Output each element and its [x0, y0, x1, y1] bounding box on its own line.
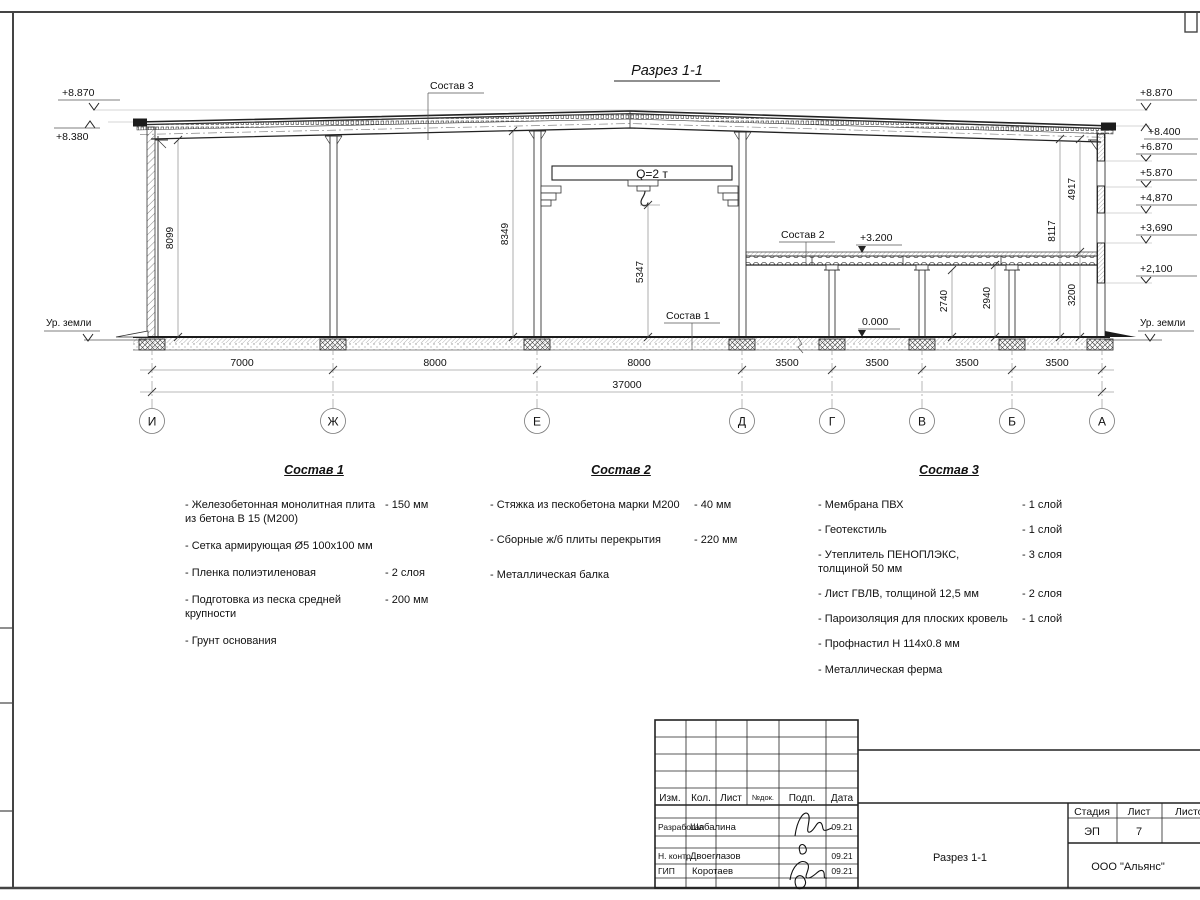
- list-item: - Железобетонная монолитная плита из бет…: [185, 498, 443, 526]
- right-eave-cap: [1101, 123, 1116, 131]
- span-total-37000: 37000: [612, 379, 641, 391]
- list-item: - Профнастил Н 114x0.8 мм: [818, 637, 1080, 651]
- section-drawing: Разрез 1-1: [0, 0, 1200, 900]
- walls-and-columns: [147, 127, 1105, 337]
- elev-right-5870: +5.870: [1140, 167, 1173, 179]
- ground-floor: [84, 331, 1162, 353]
- composition-3-block: Состав 3 - Мембрана ПВХ- 1 слой - Геотек…: [818, 462, 1080, 688]
- left-eave-cap: [133, 119, 147, 127]
- tb-col-data: Дата: [831, 793, 854, 804]
- column-zh: [325, 136, 342, 337]
- column-e: [529, 131, 561, 337]
- elevation-marks-left: +8.870 +8.380: [54, 87, 120, 143]
- axis-a: А: [1098, 415, 1106, 429]
- column-d: [718, 132, 751, 337]
- dim-8349: 8349: [500, 222, 511, 245]
- axis-g: Г: [829, 415, 836, 429]
- list-item: - Подготовка из песка средней крупности-…: [185, 593, 443, 621]
- composition-1-block: Состав 1 - Железобетонная монолитная пли…: [185, 462, 443, 662]
- axis-bubbles: И Ж Е Д Г В Б А: [140, 409, 1115, 434]
- tb-col-list: Лист: [720, 793, 742, 804]
- elevation-marks-right: +8.870 +8.400 +6.870 +5.870 +4,870 +3,69…: [1136, 87, 1198, 283]
- drawing-sheet: { "sheet": { "title": "Разрез 1-1", "cra…: [0, 0, 1200, 900]
- list-item: - Лист ГВЛВ, толщиной 12,5 мм- 2 слоя: [818, 587, 1080, 601]
- tb-date-2: 09.21: [831, 866, 853, 876]
- tb-stage-label: Стадия: [1074, 806, 1110, 818]
- composition-2-block: Состав 2 - Стяжка из пескобетона марки М…: [490, 462, 752, 603]
- crane-beam: Q=2 т: [552, 166, 732, 206]
- tb-col-kol: Кол.: [691, 793, 711, 804]
- list-item: - Утеплитель ПЕНОПЛЭКС, толщиной 50 мм- …: [818, 548, 1080, 576]
- tb-col-izm: Изм.: [659, 793, 680, 804]
- tb-sheet-value: 7: [1136, 826, 1142, 838]
- ground-label-left: Ур. земли: [46, 318, 91, 329]
- axis-d: Д: [738, 415, 746, 429]
- span-3500b: 3500: [865, 357, 889, 369]
- left-wall: [147, 127, 155, 337]
- tb-name-0: Шабалина: [690, 822, 737, 833]
- sheet-frame: [0, 12, 1200, 888]
- dim-5347: 5347: [635, 260, 646, 283]
- axis-i: И: [148, 415, 157, 429]
- leader-sostav2: Состав 2: [781, 229, 825, 241]
- list-item: - Сборные ж/б плиты перекрытия- 220 мм: [490, 533, 752, 547]
- view-title: Разрез 1-1: [614, 63, 720, 81]
- composition-3-title: Состав 3: [818, 462, 1080, 478]
- crane-capacity-label: Q=2 т: [636, 167, 668, 181]
- dim-2740: 2740: [939, 289, 950, 312]
- span-3500c: 3500: [955, 357, 979, 369]
- list-item: - Металлическая ферма: [818, 663, 1080, 677]
- elev-right-8400: +8.400: [1148, 126, 1181, 138]
- span-3500a: 3500: [775, 357, 799, 369]
- composition-2-title: Состав 2: [490, 462, 752, 478]
- list-item: - Мембрана ПВХ- 1 слой: [818, 498, 1080, 512]
- tb-role-2: ГИП: [658, 866, 675, 876]
- tb-role-1: Н. контр.: [658, 851, 693, 861]
- dim-4917: 4917: [1067, 177, 1078, 200]
- leader-sostav3: Состав 3: [430, 80, 474, 92]
- tb-doc-title: Разрез 1-1: [933, 852, 987, 864]
- dim-8117: 8117: [1047, 220, 1058, 242]
- elev-right-2100: +2,100: [1140, 263, 1173, 275]
- leader-sostav1: Состав 1: [666, 310, 710, 322]
- span-8000b: 8000: [627, 357, 651, 369]
- title-block: Изм. Кол. Лист №док. Подп. Дата Разработ…: [655, 720, 1200, 889]
- elev-right-6870: +6.870: [1140, 141, 1173, 153]
- elev-right-3690: +3,690: [1140, 222, 1173, 234]
- elev-right-4870: +4,870: [1140, 192, 1173, 204]
- vertical-dimensions: 8099 8349 5347 2740 2940 8117 4917 3200: [165, 127, 1084, 341]
- dim-2940: 2940: [982, 286, 993, 309]
- roof: [133, 111, 1116, 142]
- span-3500d: 3500: [1045, 357, 1069, 369]
- list-item: - Грунт основания: [185, 634, 443, 648]
- axis-b: Б: [1008, 415, 1016, 429]
- axis-zh: Ж: [327, 415, 338, 429]
- elev-right-8870: +8.870: [1140, 87, 1173, 99]
- level-callouts: +3.200 0.000: [856, 232, 902, 337]
- view-title-text: Разрез 1-1: [631, 63, 703, 79]
- list-item: - Геотекстиль- 1 слой: [818, 523, 1080, 537]
- level-mezz-label: +3.200: [860, 232, 893, 244]
- dim-3200: 3200: [1067, 283, 1078, 306]
- list-item: - Пароизоляция для плоских кровель- 1 сл…: [818, 612, 1080, 626]
- mezzanine-floor: [746, 252, 1097, 270]
- list-item: - Металлическая балка: [490, 568, 752, 582]
- tb-stage-value: ЭП: [1084, 826, 1100, 838]
- level-zero-label: 0.000: [862, 316, 888, 328]
- list-item: - Стяжка из пескобетона марки М200- 40 м…: [490, 498, 752, 512]
- elev-left-8380: +8.380: [56, 131, 89, 143]
- crane-trolley: [628, 180, 658, 186]
- axis-e: Е: [533, 415, 541, 429]
- tb-col-podp: Подп.: [789, 793, 816, 804]
- elev-left-8870: +8.870: [62, 87, 95, 99]
- axis-v: В: [918, 415, 926, 429]
- tb-sheets-label: Листов: [1175, 806, 1200, 818]
- ground-label-right: Ур. земли: [1140, 318, 1185, 329]
- dim-8099: 8099: [165, 226, 176, 249]
- tb-date-1: 09.21: [831, 851, 853, 861]
- list-item: - Пленка полиэтиленовая- 2 слоя: [185, 566, 443, 580]
- tb-name-2: Коротаев: [692, 866, 733, 877]
- tb-name-1: Двоеглазов: [690, 851, 741, 862]
- span-8000a: 8000: [423, 357, 447, 369]
- tb-col-ndok: №док.: [752, 793, 774, 802]
- horizontal-dimensions: 7000 8000 8000 3500 3500 3500 3500 37000: [140, 345, 1114, 408]
- list-item: - Сетка армирующая Ø5 100x100 мм: [185, 539, 443, 553]
- right-wall: [1088, 130, 1105, 337]
- tb-sheet-label: Лист: [1128, 806, 1151, 818]
- crane-hook: [641, 191, 648, 206]
- span-7000: 7000: [230, 357, 254, 369]
- tb-date-0: 09.21: [831, 822, 853, 832]
- composition-1-title: Состав 1: [185, 462, 443, 478]
- tb-company: ООО "Альянс": [1091, 861, 1165, 873]
